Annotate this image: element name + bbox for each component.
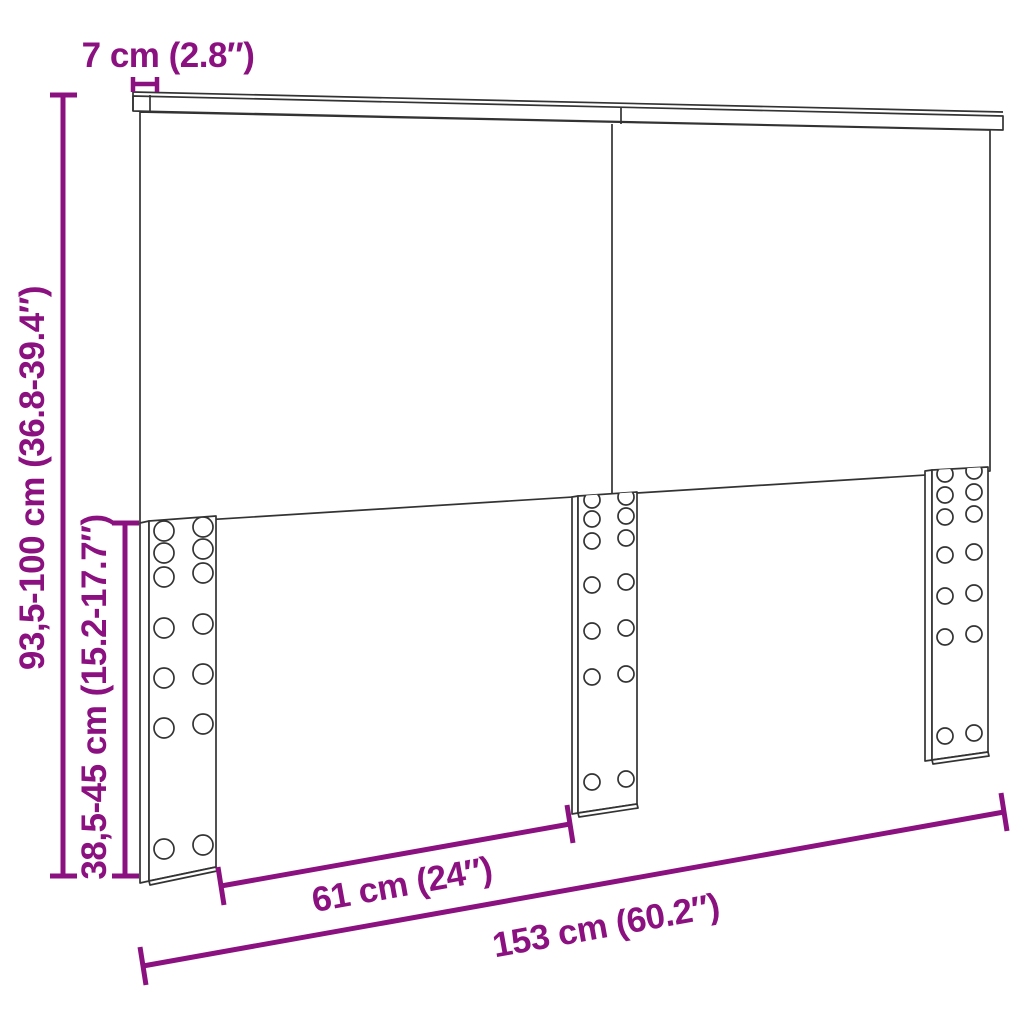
bolt-hole [618, 771, 634, 787]
bolt-hole [193, 714, 213, 734]
dim-tick [1001, 793, 1007, 831]
bolt-hole [154, 618, 174, 638]
bolt-hole [937, 547, 953, 563]
leg-side-face [140, 521, 149, 883]
leg-side-face [925, 470, 932, 761]
bolt-hole [584, 533, 600, 549]
dim-tick [140, 947, 146, 985]
bolt-hole [937, 629, 953, 645]
bolt-hole [966, 484, 982, 500]
bolt-hole [618, 530, 634, 546]
dim-top-depth: 7 cm (2.8″) [82, 36, 255, 92]
dimension-label-legs-height: 38,5-45 cm (15.2-17.7″) [75, 514, 114, 879]
bolt-hole [966, 725, 982, 741]
bolt-hole [937, 588, 953, 604]
bolt-hole [193, 664, 213, 684]
bolt-hole [193, 539, 213, 559]
bolt-hole [584, 511, 600, 527]
bolt-hole [937, 728, 953, 744]
right-leg [925, 463, 989, 764]
bolt-hole [584, 577, 600, 593]
leg-side-face [572, 496, 578, 814]
bolt-hole [966, 544, 982, 560]
dimension-label-overall-height: 93,5-100 cm (36.8-39.4″) [13, 286, 52, 670]
bolt-hole [154, 718, 174, 738]
bolt-hole [154, 543, 174, 563]
dim-overall-width: 153 cm (60.2″) [140, 793, 1007, 985]
dim-overall-height: 93,5-100 cm (36.8-39.4″) [13, 95, 77, 876]
bolt-hole [966, 626, 982, 642]
dim-legs-gap: 61 cm (24″) [218, 805, 573, 920]
headboard-dimension-diagram: 7 cm (2.8″) 93,5-100 cm (36.8-39.4″) 38,… [0, 0, 1024, 1024]
diagram-stage: 7 cm (2.8″) 93,5-100 cm (36.8-39.4″) 38,… [0, 0, 1024, 1024]
headboard-drawing [133, 92, 1003, 885]
bolt-hole [584, 669, 600, 685]
middle-leg [572, 489, 638, 817]
bolt-hole [154, 567, 174, 587]
bolt-hole [618, 508, 634, 524]
headboard-panel [140, 112, 990, 524]
bolt-hole [937, 487, 953, 503]
bolt-hole [937, 509, 953, 525]
bolt-hole [966, 506, 982, 522]
bolt-hole [618, 620, 634, 636]
bolt-hole [966, 585, 982, 601]
bolt-hole [618, 574, 634, 590]
bolt-hole [154, 839, 174, 859]
bolt-hole [193, 835, 213, 855]
left-leg [140, 516, 217, 885]
bolt-hole [154, 668, 174, 688]
bolt-hole [154, 521, 174, 541]
dimension-label-top-depth: 7 cm (2.8″) [82, 36, 255, 75]
dim-legs-height: 38,5-45 cm (15.2-17.7″) [75, 514, 139, 879]
dim-tick [218, 867, 224, 905]
bolt-hole [584, 623, 600, 639]
bolt-hole [193, 563, 213, 583]
bolt-hole [193, 614, 213, 634]
bolt-hole [193, 517, 213, 537]
bolt-hole [618, 666, 634, 682]
bolt-hole [584, 774, 600, 790]
